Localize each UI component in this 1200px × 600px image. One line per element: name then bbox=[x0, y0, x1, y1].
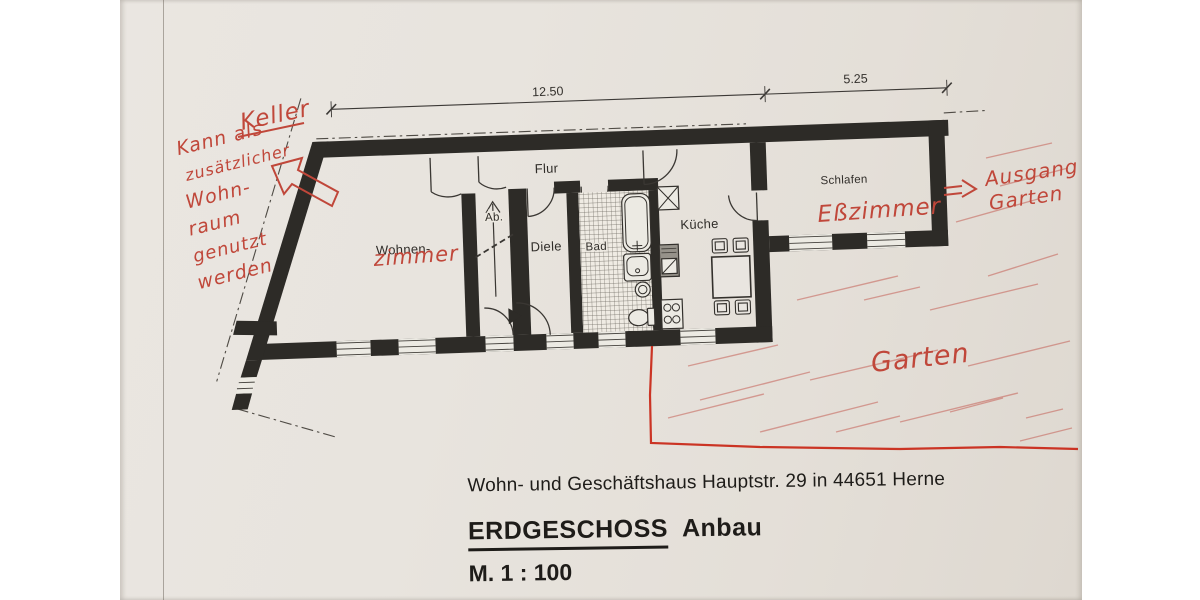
stove bbox=[661, 299, 683, 329]
window bbox=[867, 231, 906, 248]
plan-title-suffix: Anbau bbox=[682, 513, 763, 542]
bidet bbox=[635, 282, 651, 298]
door-arc bbox=[527, 188, 555, 217]
window bbox=[598, 331, 626, 348]
washbasin bbox=[624, 253, 652, 281]
wall-flur-seg2 bbox=[608, 178, 658, 192]
window bbox=[398, 338, 436, 355]
photo-white-margin-right bbox=[1082, 0, 1200, 600]
dashdot-right bbox=[944, 110, 988, 113]
label-schlafen: Schlafen bbox=[820, 174, 868, 188]
window bbox=[546, 333, 574, 350]
dashdot-bottom-left bbox=[237, 405, 337, 440]
door-leaf bbox=[478, 156, 479, 182]
bath-fixtures bbox=[578, 190, 655, 332]
kitchen-fixtures bbox=[657, 184, 752, 329]
window bbox=[336, 340, 371, 357]
window bbox=[789, 234, 833, 251]
title-block: Wohn- und Geschäftshaus Hauptstr. 29 in … bbox=[467, 469, 946, 588]
note-esszimmer: Eßzimmer bbox=[817, 193, 943, 228]
note-garten: Garten bbox=[869, 338, 971, 379]
note-zimmer: zimmer bbox=[372, 241, 460, 271]
wall-slant-cap bbox=[231, 393, 253, 410]
dimension-annex-label: 5.25 bbox=[843, 72, 868, 87]
label-diele: Diele bbox=[530, 238, 562, 254]
door-arc bbox=[431, 191, 461, 198]
door-leaf bbox=[430, 158, 431, 192]
floor-plan: 12.50 5.25 bbox=[207, 67, 999, 441]
photo-white-margin-left bbox=[0, 0, 120, 600]
window bbox=[680, 328, 716, 345]
label-ab: Ab. bbox=[485, 211, 504, 224]
plan-title: ERDGESCHOSSAnbau bbox=[468, 511, 946, 552]
dimension-total-label: 12.50 bbox=[532, 84, 564, 99]
door-leaf bbox=[527, 189, 528, 217]
wall-slant-lower bbox=[240, 360, 263, 378]
scanned-floorplan-photo: 12.50 5.25 bbox=[0, 0, 1200, 600]
door-arc bbox=[479, 181, 506, 189]
window-slanted bbox=[236, 377, 258, 394]
toilet-tank bbox=[647, 308, 655, 325]
dimension-line: 12.50 5.25 bbox=[326, 69, 953, 118]
wall-top bbox=[312, 120, 948, 158]
wall-stub-left bbox=[233, 319, 278, 337]
plan-title-main: ERDGESCHOSS bbox=[468, 515, 668, 552]
label-flur: Flur bbox=[534, 160, 558, 176]
ausgang-arrow-icon bbox=[944, 180, 976, 197]
label-kueche: Küche bbox=[680, 216, 719, 232]
wall-flur-seg1 bbox=[554, 181, 580, 194]
toilet bbox=[628, 309, 649, 326]
kitchen-table bbox=[712, 256, 751, 298]
label-bad: Bad bbox=[585, 241, 607, 254]
window bbox=[485, 335, 514, 352]
door-leaf bbox=[756, 193, 757, 221]
wall-annex-left-upper bbox=[750, 142, 768, 191]
wall-corridor-left bbox=[461, 193, 480, 336]
door-arc bbox=[729, 195, 758, 222]
garden-boundary-line bbox=[650, 346, 1078, 449]
wall-annex-right bbox=[928, 120, 948, 246]
